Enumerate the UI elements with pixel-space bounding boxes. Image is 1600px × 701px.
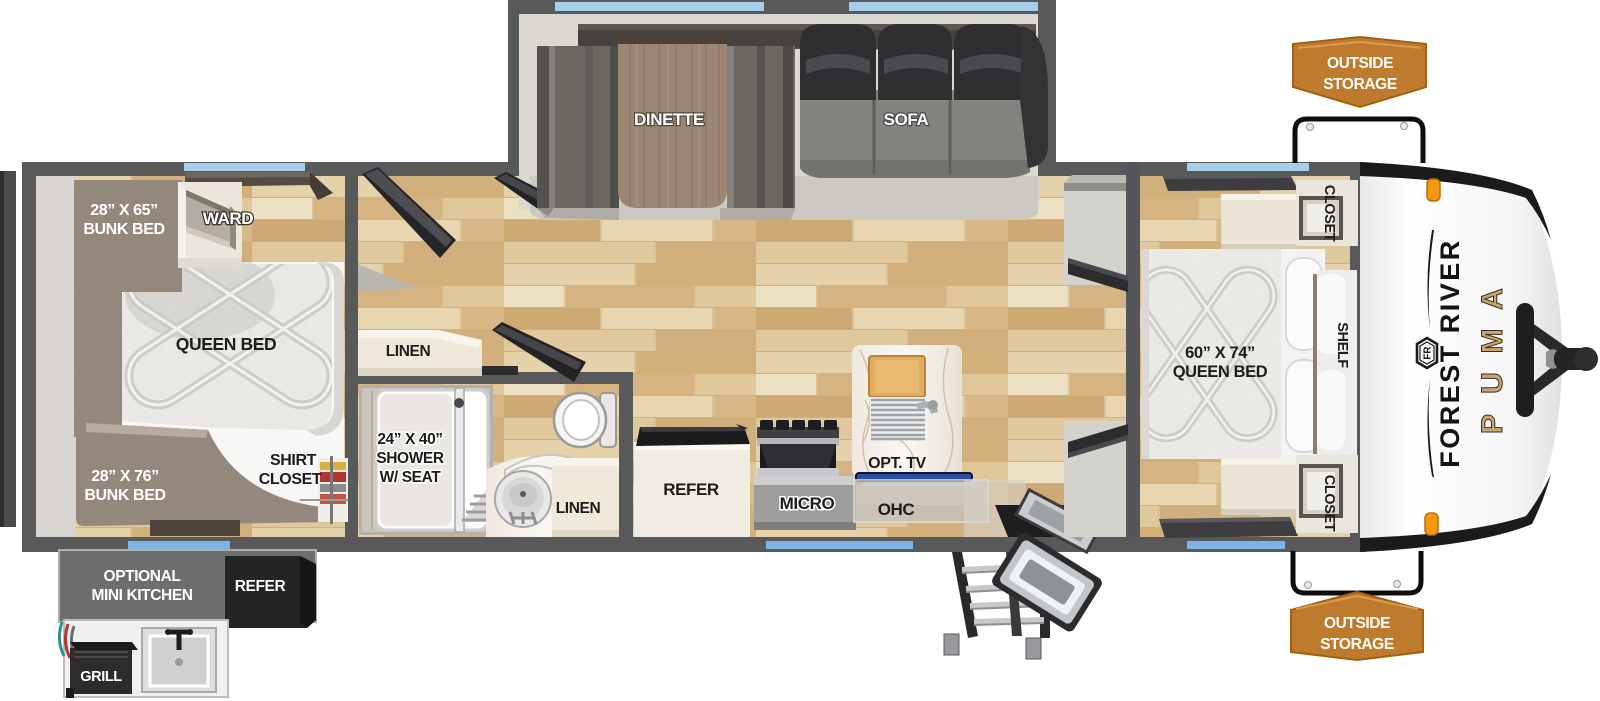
svg-text:STORAGE: STORAGE xyxy=(1320,636,1394,653)
svg-text:CLOSET: CLOSET xyxy=(259,471,322,488)
svg-text:U: U xyxy=(1476,372,1509,394)
svg-text:CLOSET: CLOSET xyxy=(1321,185,1337,242)
svg-text:OUTSIDE: OUTSIDE xyxy=(1324,615,1390,632)
svg-text:OUTSIDE: OUTSIDE xyxy=(1327,55,1393,72)
svg-text:QUEEN BED: QUEEN BED xyxy=(1173,363,1268,381)
svg-text:STORAGE: STORAGE xyxy=(1323,76,1397,93)
svg-text:28” X 76”: 28” X 76” xyxy=(91,468,159,485)
svg-text:OHC: OHC xyxy=(878,500,915,519)
svg-text:DINETTE: DINETTE xyxy=(634,110,704,129)
svg-text:CLOSET: CLOSET xyxy=(1321,475,1337,532)
svg-text:LINEN: LINEN xyxy=(556,500,601,517)
svg-text:60” X 74”: 60” X 74” xyxy=(1185,344,1255,362)
svg-text:BUNK BED: BUNK BED xyxy=(83,221,164,238)
svg-text:OPT. TV: OPT. TV xyxy=(868,455,926,472)
svg-text:BUNK BED: BUNK BED xyxy=(84,487,165,504)
svg-text:GRILL: GRILL xyxy=(80,669,122,685)
svg-text:LINEN: LINEN xyxy=(386,343,431,360)
svg-text:REFER: REFER xyxy=(235,578,286,595)
svg-text:WARD: WARD xyxy=(203,209,253,228)
svg-text:24” X 40”: 24” X 40” xyxy=(377,431,442,448)
svg-text:FR: FR xyxy=(1423,346,1434,360)
svg-text:28” X 65”: 28” X 65” xyxy=(90,202,158,219)
svg-text:QUEEN BED: QUEEN BED xyxy=(176,334,276,354)
svg-text:A: A xyxy=(1476,288,1509,310)
svg-text:SHOWER: SHOWER xyxy=(376,450,444,467)
svg-text:SOFA: SOFA xyxy=(884,110,929,129)
svg-text:SHIRT: SHIRT xyxy=(270,452,317,469)
svg-text:P: P xyxy=(1476,414,1509,434)
svg-text:M: M xyxy=(1476,329,1509,354)
svg-text:REFER: REFER xyxy=(663,480,719,499)
svg-text:MICRO: MICRO xyxy=(780,494,835,513)
svg-text:OPTIONAL: OPTIONAL xyxy=(104,568,181,585)
svg-text:MINI KITCHEN: MINI KITCHEN xyxy=(91,587,192,604)
svg-text:FOREST RIVER: FOREST RIVER xyxy=(1435,238,1465,468)
svg-text:SHELF: SHELF xyxy=(1334,322,1350,368)
svg-text:W/ SEAT: W/ SEAT xyxy=(380,469,442,486)
